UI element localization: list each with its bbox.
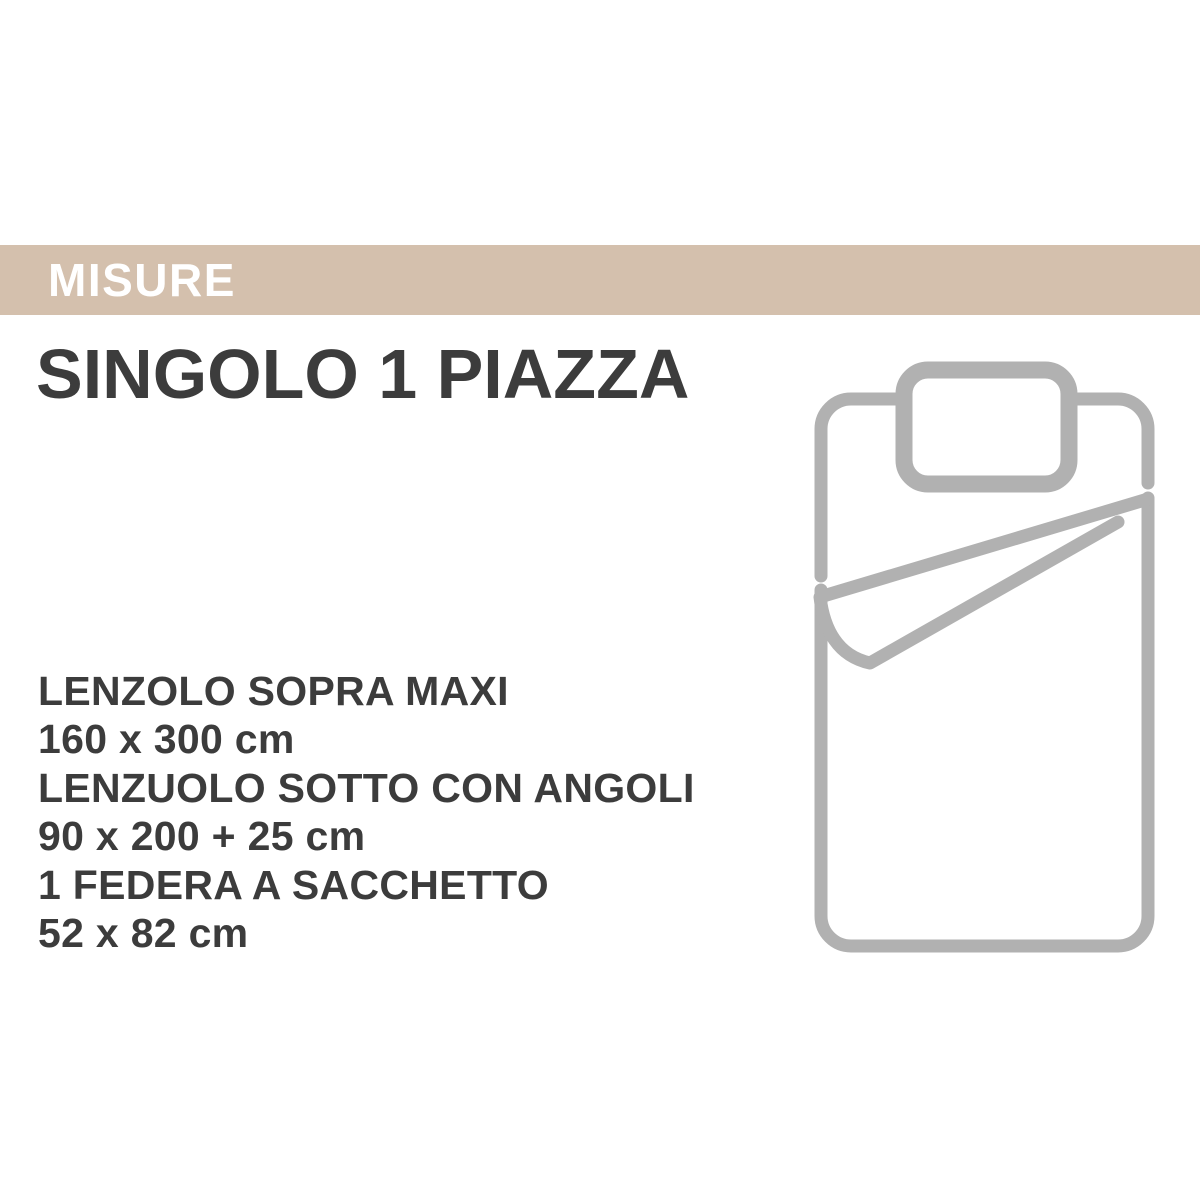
page-title: SINGOLO 1 PIAZZA: [36, 339, 689, 409]
section-header-label: MISURE: [48, 257, 236, 303]
spec-label: LENZOLO SOPRA MAXI: [38, 667, 695, 715]
measurements-list: LENZOLO SOPRA MAXI 160 x 300 cm LENZUOLO…: [38, 667, 695, 957]
misure-infographic: MISURE SINGOLO 1 PIAZZA LENZOLO SOPRA MA…: [0, 0, 1200, 1200]
spec-size: 160 x 300 cm: [38, 715, 695, 763]
spec-size: 52 x 82 cm: [38, 909, 695, 957]
folded-sheet-icon: [820, 499, 1148, 663]
pillow-icon: [904, 370, 1069, 484]
spec-label: 1 FEDERA A SACCHETTO: [38, 861, 695, 909]
section-header-bar: MISURE: [0, 245, 1200, 315]
single-bed-icon: [800, 350, 1170, 970]
spec-size: 90 x 200 + 25 cm: [38, 812, 695, 860]
spec-label: LENZUOLO SOTTO CON ANGOLI: [38, 764, 695, 812]
